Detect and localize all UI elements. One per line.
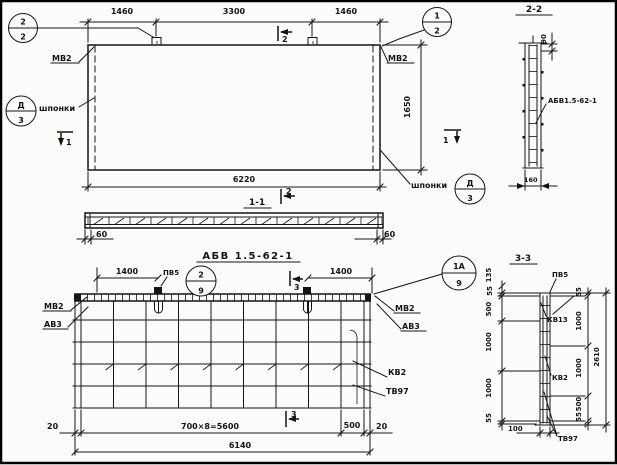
lifting-loop-detail: [157, 41, 313, 44]
dim-55-left-bottom: 55: [485, 413, 493, 423]
mesh-label-av3-right: АВ3: [402, 322, 420, 331]
cut-mark-3-bottom-label: 3: [291, 410, 297, 419]
dim-1650: 1650: [403, 95, 412, 118]
mesh-corner-weld: [74, 294, 81, 302]
sec33-label-kv13: КВ13: [547, 316, 568, 324]
balloon-key-right-sheet: 3: [467, 194, 473, 203]
dim-135: 135: [485, 268, 493, 283]
balloon-1a-9-sheet: 9: [456, 279, 462, 288]
section-1-1-title: 1-1: [249, 198, 265, 208]
dim-90: 90: [540, 34, 548, 44]
product-caption: АБВ 1.5-62-1: [202, 251, 293, 262]
lifting-loop-icon: [154, 287, 162, 294]
plan-view: 1460 3300 1460 6220 1650 2 2 1 2 МВ2 МВ2…: [6, 7, 485, 204]
lifting-loop-icon: [308, 38, 317, 46]
balloon-top-right-num: 1: [434, 12, 440, 21]
mesh-weld-flags: [106, 364, 342, 370]
mesh-view: 1400 1400 ПВ5 2 9 1А 9 МВ2 АВ3 МВ2 АВ3 К…: [43, 256, 476, 455]
key-joint-dashed-lines: [95, 46, 373, 169]
dim-500-right: 500: [575, 397, 583, 412]
dim-160: 160: [524, 176, 538, 184]
balloon-2-9-sheet: 9: [198, 287, 204, 296]
dim-55-left-top: 55: [486, 286, 494, 296]
mesh-label-mv2-right: МВ2: [395, 304, 415, 313]
mesh-label-mv2-left: МВ2: [44, 302, 64, 311]
dim-700x8: 700×8=5600: [181, 422, 239, 431]
section-3-3-plate: [551, 296, 574, 314]
strip-truss-web: [86, 217, 382, 224]
mesh-right-bent-bar: [350, 330, 357, 404]
panel-drawing: 1460 3300 1460 6220 1650 2 2 1 2 МВ2 МВ2…: [0, 0, 617, 465]
section-2-2-title: 2-2: [526, 5, 542, 15]
sec33-label-kv2: КВ2: [552, 374, 568, 382]
dim-60-left: 60: [96, 230, 108, 239]
panel-outline: [88, 45, 380, 170]
dim-60-right: 60: [384, 230, 396, 239]
dim-20-left: 20: [47, 422, 59, 431]
dim-1000-left-a: 1000: [485, 332, 493, 352]
dim-55-right-top: 55: [575, 287, 583, 297]
cut-mark-1-right-label: 1: [443, 136, 449, 145]
cut-mark-3-top-arrow: [292, 276, 300, 282]
dim-6220: 6220: [233, 175, 256, 184]
dim-3300: 3300: [223, 7, 246, 16]
dim-2610: 2610: [593, 347, 601, 367]
balloon-key-left-letter: Д: [17, 101, 24, 110]
section-2-2-rungs: [529, 45, 537, 166]
dim-1000-right-a: 1000: [575, 311, 583, 331]
sec33-label-pv5: ПВ5: [552, 271, 568, 279]
mesh-label-tv97: ТВ97: [386, 387, 409, 396]
lifting-loop-hook: [155, 301, 163, 313]
section-1-1: 1-1 2 60 60 АБВ 1.5-62-1: [77, 187, 396, 262]
dim-1000-right-b: 1000: [575, 358, 583, 378]
label-pv5: ПВ5: [163, 269, 179, 277]
cut-mark-3-top-label: 3: [294, 283, 300, 292]
lifting-loop-icon: [152, 38, 161, 46]
dim-1460-right: 1460: [335, 7, 358, 16]
cut-mark-1-left-label: 1: [66, 138, 72, 147]
label-shponki-left-leader: [79, 98, 94, 107]
label-shponki-left: шпонки: [39, 104, 75, 113]
balloon-key-left-sheet: 3: [18, 116, 24, 125]
balloon-top-right-leader: [382, 22, 452, 46]
section-3-3: 3-3 135 55 500 1000 1000 55 55 1000 1000…: [485, 254, 610, 443]
balloon-key-right-letter: Д: [466, 179, 473, 188]
mesh-vertical-bars: [75, 301, 370, 408]
mesh-label-tv97-leader: [353, 385, 385, 396]
lifting-loop-icon: [303, 287, 311, 294]
dim-6140: 6140: [229, 441, 252, 450]
mesh-horizontal-bars: [73, 320, 371, 408]
cut-mark-1-left-arrow: [58, 138, 64, 146]
balloon-2-9-num: 2: [198, 271, 204, 280]
section-3-3-title: 3-3: [515, 254, 531, 264]
section-2-2-label: АБВ1.5-62-1: [548, 97, 597, 105]
label-shponki-right: шпонки: [411, 181, 447, 190]
dim-100: 100: [508, 425, 523, 433]
mesh-label-kv2: КВ2: [388, 368, 406, 377]
label-mv2-right: МВ2: [388, 54, 408, 63]
dim-1400-left: 1400: [116, 267, 139, 276]
sec33-left-dim-lines: [498, 281, 540, 430]
lifting-loop-hook: [304, 301, 312, 313]
dim-1000-left-b: 1000: [485, 378, 493, 398]
dim-20-right: 20: [376, 422, 388, 431]
sec33-label-pv5-leader: [550, 279, 556, 292]
section-2-2: 2-2 90 АБВ1.5-62-1 160: [509, 5, 597, 190]
balloon-top-left-num: 2: [20, 18, 26, 27]
balloon-1a-9-num: 1А: [453, 262, 466, 271]
cut-mark-1-right-arrow: [454, 136, 460, 144]
mesh-label-av3-left: АВ3: [44, 320, 62, 329]
cut-mark-2-top-label: 2: [282, 35, 288, 44]
dim-55-right-bottom: 55: [575, 412, 583, 422]
label-shponki-right-leader: [381, 151, 410, 184]
label-mv2-left: МВ2: [52, 54, 72, 63]
balloon-top-right-sheet: 2: [434, 27, 440, 36]
dim-500: 500: [344, 421, 361, 430]
cut-mark-2-strip-label: 2: [286, 187, 292, 196]
mesh-corner-weld: [365, 294, 371, 302]
balloon-top-left-leader: [9, 28, 154, 37]
sec33-label-tv97: ТВ97: [558, 435, 578, 443]
balloon-top-left-sheet: 2: [20, 33, 26, 42]
label-pv5-leader: [161, 277, 167, 286]
dim-1400-right: 1400: [330, 267, 353, 276]
drawing-sheet: 1460 3300 1460 6220 1650 2 2 1 2 МВ2 МВ2…: [0, 0, 617, 465]
mesh-top-chord-ticks: [75, 294, 370, 301]
dim-500-left: 500: [485, 302, 493, 317]
plan-top-dim-lines: [80, 19, 388, 42]
dim-1460-left: 1460: [111, 7, 134, 16]
